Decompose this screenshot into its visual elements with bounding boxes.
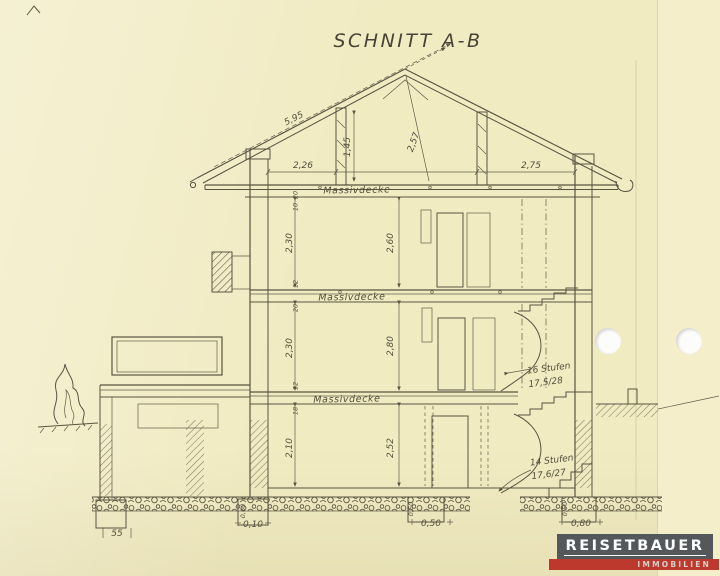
door-leaf <box>438 318 465 390</box>
stair-note-upper-count: 16 Stufen <box>526 361 571 376</box>
basement-height-center: 2,52 <box>386 438 396 458</box>
punch-hole <box>595 328 621 354</box>
right-gutter-icon <box>616 180 633 192</box>
upper-slab-thk-top: 12 <box>292 280 300 288</box>
attic-bay-left-dim: 2,26 <box>293 161 313 171</box>
roof-outline <box>190 69 633 192</box>
attic-post-dim: 1,45 <box>343 137 353 157</box>
annex-terrace <box>100 337 250 500</box>
basement-room: 2,10 2,52 14 Stufen 17,6/27 <box>285 406 592 497</box>
buried-wall-hatch <box>575 420 592 488</box>
dim-0-10: 0,10 <box>243 520 263 530</box>
ground-slab-thk-bot: 18 <box>292 407 300 415</box>
ground-floor-room: 2,30 2,80 16 Stufen 17,5/28 <box>285 288 578 391</box>
buried-wall-hatch <box>250 420 268 488</box>
attic-slab-thk-top: 20 <box>292 191 300 199</box>
wall-stub <box>421 210 431 243</box>
ridge-height-dim: 2,57 <box>406 131 422 154</box>
gravel-strip <box>520 497 662 511</box>
drawing-title: SCHNITT A-B <box>333 30 482 52</box>
upper-floor-room: 2,30 2,60 <box>285 199 546 288</box>
dim-0-80: 0,80 <box>571 519 591 529</box>
upper-slab: Massivdecke 12 20 <box>250 280 592 312</box>
wall-stub <box>422 308 432 342</box>
upper-slab-label: Massivdecke <box>318 291 385 303</box>
attic-slab: Massivdecke 20 10 <box>205 184 618 211</box>
logo-brand-bar: REISETBAUER <box>557 534 713 559</box>
chimney-block <box>212 252 232 292</box>
attic-post-right <box>477 112 487 185</box>
tree-sketch <box>38 364 98 433</box>
stair-note-upper-ratio: 17,5/28 <box>528 376 564 390</box>
footing-depth-b: 0,50 <box>407 502 415 516</box>
stair-steps-mid <box>518 392 592 415</box>
upper-floor-height-left: 2,30 <box>285 233 295 253</box>
punch-hole <box>676 328 702 354</box>
exterior-walls <box>212 185 592 497</box>
terrace-railing <box>112 337 222 375</box>
stair-steps-upper <box>518 288 578 311</box>
pen-mark <box>27 6 40 15</box>
door-leaf <box>437 213 463 287</box>
door-leaf <box>473 318 495 390</box>
footing-depth-c: 0,50 <box>561 502 569 516</box>
door-leaf <box>467 213 490 287</box>
ground-slab-label: Massivdecke <box>313 393 380 405</box>
logo-brand-text: REISETBAUER <box>564 538 707 556</box>
upper-floor-height-center: 2,60 <box>386 233 396 253</box>
annex-pier-hatch <box>186 420 204 496</box>
attic-bay-right-dim: 2,75 <box>521 161 541 171</box>
basement-height-left: 2,10 <box>285 438 295 458</box>
dim-55: 55 <box>111 529 123 539</box>
bottom-dimensions: 55 0,10 0,50 0,80 <box>103 519 603 539</box>
foundation: 0,60 0,50 0,50 <box>92 420 662 528</box>
attic-slab-thk-bot: 10 <box>292 203 300 211</box>
dim-0-50: 0,50 <box>421 519 441 529</box>
stair-note-lower-count: 14 Stufen <box>529 453 574 468</box>
reisetbauer-logo: REISETBAUER IMMOBILIEN <box>549 534 719 570</box>
section-drawing: SCHNITT A-B 5,95 1,45 <box>0 0 720 576</box>
upper-slab-thk-bot: 20 <box>292 304 300 312</box>
annex-pier-hatch <box>100 424 112 496</box>
logo-division-bar: IMMOBILIEN <box>549 559 719 570</box>
attic-slab-label: Massivdecke <box>323 184 390 196</box>
right-ground <box>596 389 719 417</box>
scanned-plan-sheet: SCHNITT A-B 5,95 1,45 <box>0 0 720 576</box>
ground-slab-thk-top: 12 <box>292 382 300 390</box>
annex-recess <box>138 404 218 428</box>
footing-depth-a: 0,60 <box>239 504 247 518</box>
door-leaf <box>432 416 468 488</box>
left-gutter-icon <box>190 182 195 187</box>
logo-division-text: IMMOBILIEN <box>637 560 711 569</box>
ground-floor-height-center: 2,80 <box>386 336 396 356</box>
ground-floor-height-left: 2,30 <box>285 338 295 358</box>
